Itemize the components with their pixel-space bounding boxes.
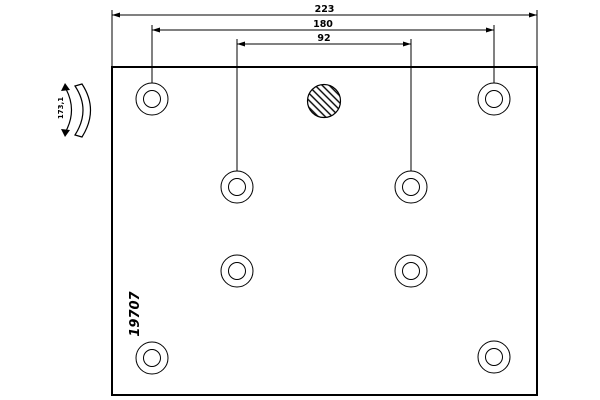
dimension-label: 223 — [315, 4, 335, 15]
rivet-hole — [221, 255, 253, 287]
part-number: 19707 — [128, 290, 143, 336]
drawing-canvas: 173,1 19707 22318092 — [0, 0, 600, 400]
rivet-hole — [478, 83, 510, 115]
rivet-hole-inner — [229, 179, 246, 196]
rivet-hole — [136, 342, 168, 374]
curved-arrow-head-bottom — [61, 129, 70, 137]
rivet-hole-inner — [144, 350, 161, 367]
rivet-hole-inner — [229, 263, 246, 280]
dimension-arrow-left — [152, 28, 160, 33]
rivet-hole — [395, 255, 427, 287]
dimension-arrow-right — [403, 42, 411, 47]
rivet-hole — [478, 341, 510, 373]
rivet-hole — [395, 171, 427, 203]
brake-lining-drawing: 173,1 19707 22318092 — [0, 0, 600, 400]
rivet-hole-inner — [403, 179, 420, 196]
rivet-hole — [136, 83, 168, 115]
dimension-arrow-right — [486, 28, 494, 33]
curved-arrow-head-top — [61, 83, 70, 91]
dimension-arrow-left — [237, 42, 245, 47]
radius-label: 173,1 — [57, 97, 65, 119]
rivet-hole-inner — [486, 91, 503, 108]
rivet-hole-inner — [144, 91, 161, 108]
hatched-hole — [308, 85, 341, 118]
curved-arrow-shaft — [66, 89, 72, 131]
dimension-arrow-right — [529, 13, 537, 18]
rivet-hole-inner — [403, 263, 420, 280]
rivet-hole-inner — [486, 349, 503, 366]
curved-lining-profile — [75, 84, 91, 137]
dimension-arrow-left — [112, 13, 120, 18]
rivet-hole — [221, 171, 253, 203]
curvature-arrow-icon: 173,1 — [57, 83, 91, 137]
dimension-label: 92 — [317, 33, 330, 44]
dimension-label: 180 — [313, 19, 333, 30]
